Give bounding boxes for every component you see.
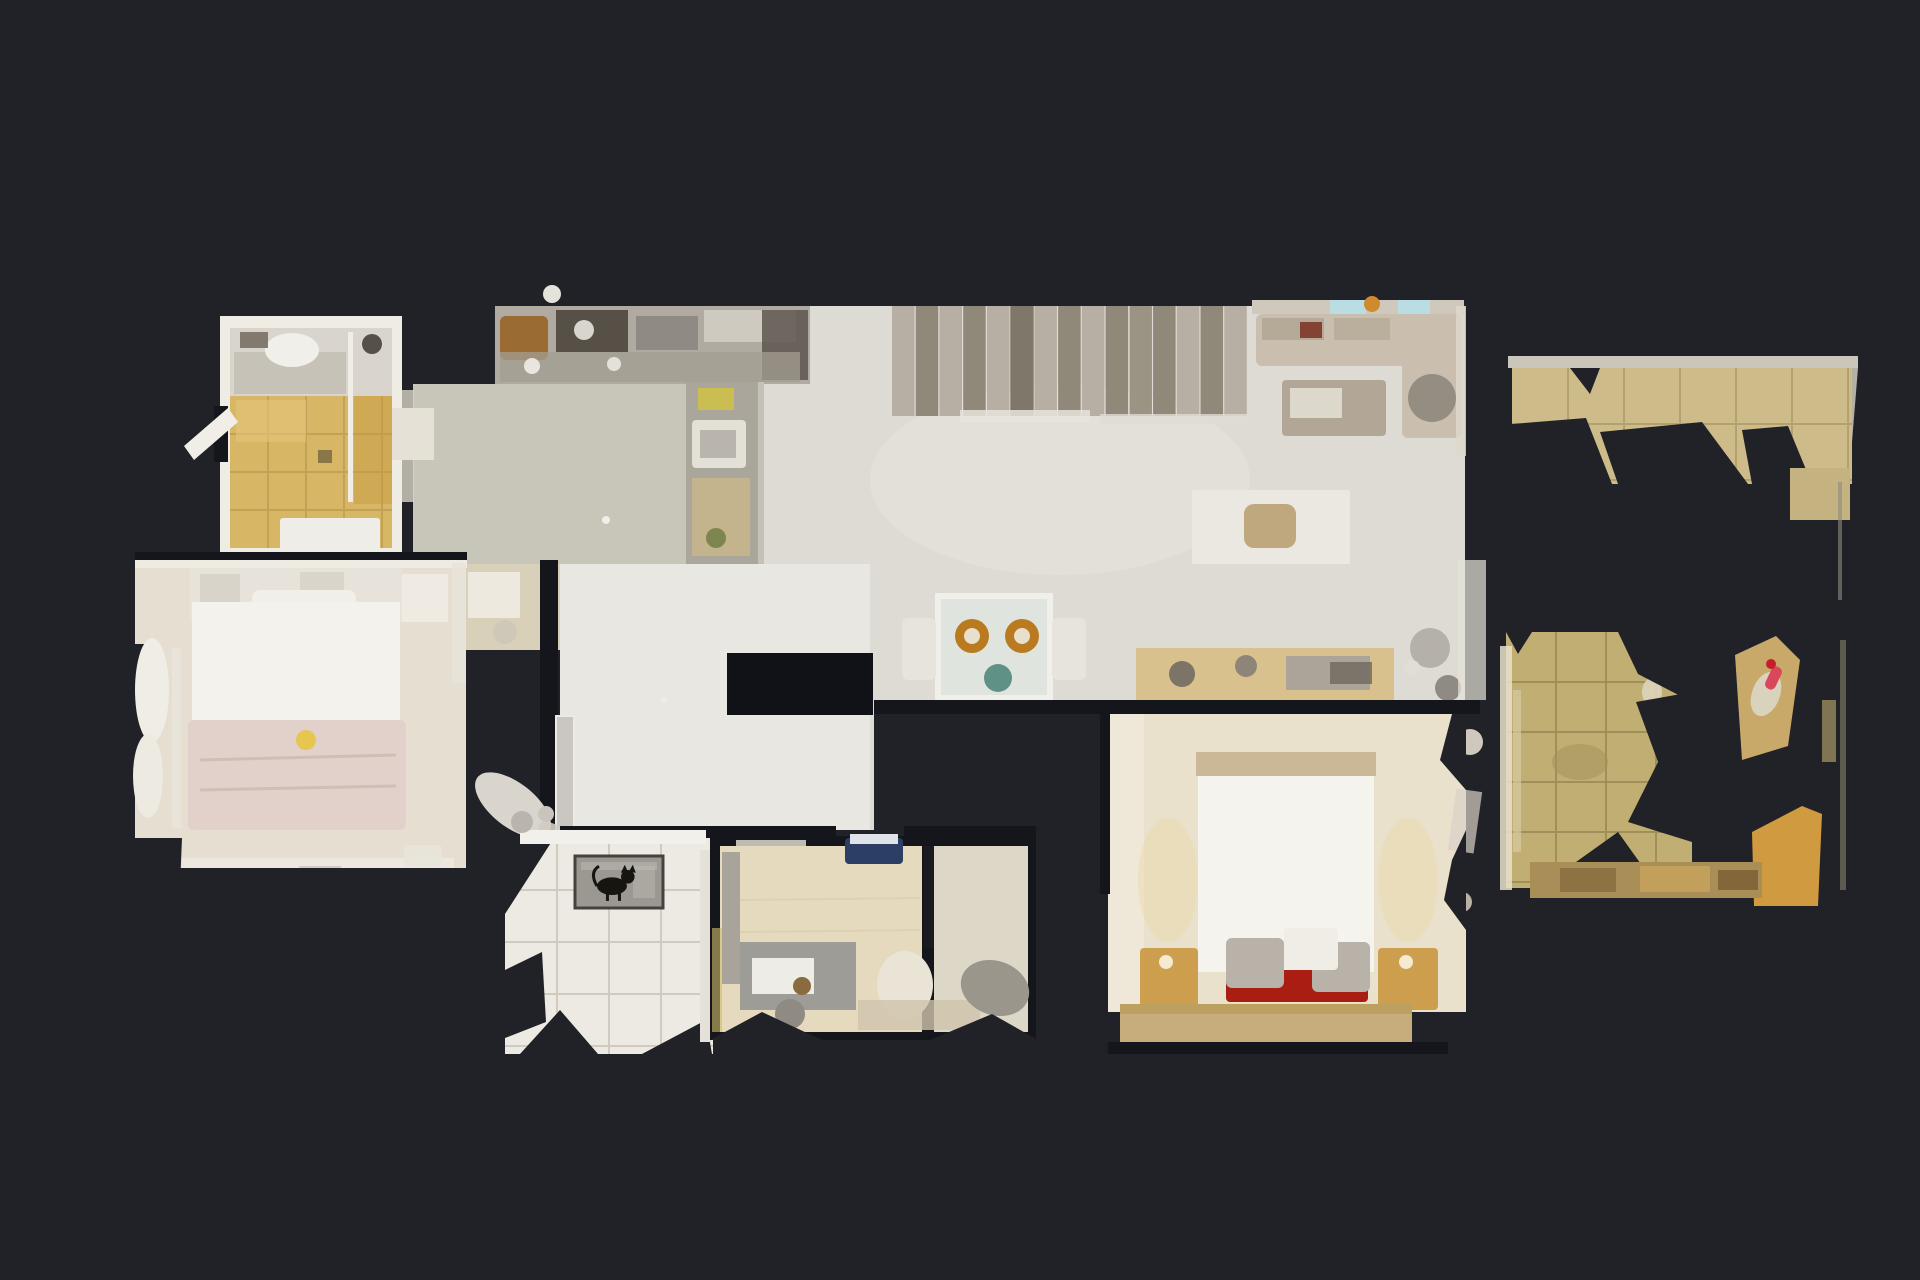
lamp [1399,955,1413,969]
terrace2-fragment-orange [1752,806,1822,906]
shower-fixture [362,334,382,354]
side-wall [452,563,466,683]
table-plant [984,664,1012,692]
bedroom2-left-wall [1100,714,1110,894]
band-patch [1640,866,1710,892]
scan-bite [298,866,342,886]
tile-dark-patch [354,396,392,504]
decor-orange [1364,296,1380,312]
bench-item [1169,661,1195,687]
island-green-item [706,528,726,548]
hanging-robe [133,734,163,818]
bathroom-side-nook [392,408,434,460]
office-side-panel [722,852,740,984]
sofa-cushion-red [1300,322,1322,338]
cat-doormat [575,856,663,908]
metal-clutter [1435,675,1461,701]
clutter [538,806,554,822]
floorplan-svg [0,0,1920,1280]
nightstand [402,574,448,622]
shower-partition [348,332,353,502]
floor-speck [602,516,610,524]
stair-dark-tread [1010,306,1034,416]
terrace2-right-strip [1840,640,1846,890]
office-yellow-strip [712,928,722,1032]
wall-shelf [172,648,181,828]
floor-mat [858,1000,980,1030]
bedroom2-floor-left [1108,714,1144,1012]
bedroom2-bottom-wall [1108,1042,1448,1054]
window [1330,300,1366,315]
bed2-bench-shade [1120,1004,1412,1014]
floor-speck [661,697,667,703]
scan-speck [543,285,561,303]
staircase [892,306,1247,416]
kitchen-dish [524,358,540,374]
tile-stain [1552,744,1608,780]
room-bathroom[interactable] [184,316,434,556]
railing-line [1838,482,1842,600]
lamp [1159,955,1173,969]
lamp-glow [1138,818,1198,942]
threshold [520,830,706,844]
sofa-cushion [1334,318,1390,340]
kitchen-pot [574,320,594,340]
floor-drain [318,450,332,463]
bench-item [1235,655,1257,677]
stool [493,620,517,644]
bench-clutter-dark [1330,662,1372,684]
dining-chair-seat [1014,628,1030,644]
scan-void [727,653,873,715]
right-wall [1456,306,1466,456]
blue-object-top [850,834,898,844]
low-stool [404,845,442,867]
desk-item [793,977,811,995]
curtain-artifact [1458,560,1486,700]
bath-mat [280,518,380,550]
entry-desk [468,572,520,618]
mirror-door [556,716,574,832]
island-sink-basin [700,430,736,458]
stair-base-edge [960,410,1090,422]
scan-bite [135,838,182,886]
stair-dark-tread [1130,306,1152,416]
side-chair [902,618,936,680]
tile-bright-patch [236,400,306,442]
bedroom-wall [135,560,467,568]
bed2-pillow-sequin [1226,938,1284,988]
terrace-top[interactable] [1508,356,1858,600]
terrace2-left-strip [1513,690,1521,852]
room-office[interactable] [710,834,1038,1040]
pouf [1408,374,1456,422]
kitchen-dish [607,357,621,371]
pink-object-tip [1766,659,1776,669]
room-entry[interactable] [505,806,713,1054]
island-edge-highlight [758,382,764,564]
band-patch [1560,868,1616,892]
metal-clutter [1404,660,1420,676]
kitchen-sink-top [636,316,698,350]
window [1398,300,1430,315]
desk-chair [1244,504,1296,548]
terrace-bottom[interactable] [1500,632,1846,906]
office-top-strip [736,840,806,846]
bed-yellow-spot [296,730,316,750]
wall-living-bottom [874,700,1480,714]
hanging-robe [135,638,169,742]
terrace2-left-strip [1500,646,1512,890]
bathroom-dark-item [240,332,268,348]
clutter [511,811,533,833]
bed-sheet [192,602,400,724]
terrace2-right-frag [1822,700,1836,762]
floorplan-viewport[interactable] [0,0,1920,1280]
stair-base-edge [1100,414,1250,424]
bed2-footboard [1196,752,1376,776]
band-patch [1718,870,1758,890]
island-yellow-item [698,388,734,410]
dining-chair-seat [964,628,980,644]
room-bedroom-left[interactable] [133,552,520,886]
lamp-glow [1378,818,1438,942]
kitchen-lower-shelf [500,352,800,382]
room-bedroom-right[interactable] [1100,714,1483,1054]
side-chair [1052,618,1086,680]
coffee-table-top [1290,388,1342,418]
terrace1-edge [1508,356,1858,368]
bed2-pillow-white [1284,928,1338,970]
office-divider [924,846,934,948]
pillow-shadow [200,574,240,604]
bathroom-sink [265,333,319,367]
